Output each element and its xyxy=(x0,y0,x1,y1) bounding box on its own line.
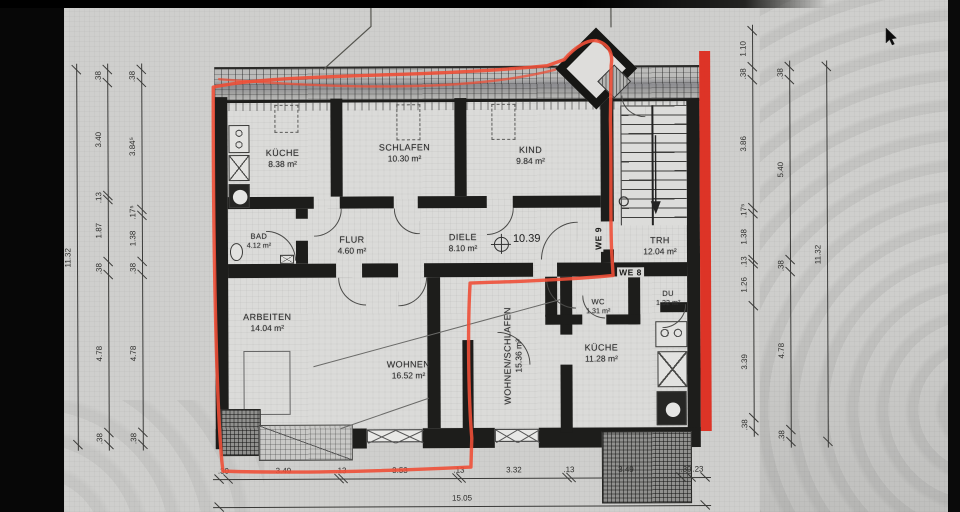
window xyxy=(367,429,423,442)
photo-top-edge xyxy=(0,0,828,8)
wall-bad xyxy=(296,241,308,264)
dimension-value: 3.84⁵ xyxy=(128,137,137,156)
level-marker-icon xyxy=(494,237,509,252)
level-marker-value: 10.39 xyxy=(513,233,541,245)
wall-ws-kueche xyxy=(560,365,572,433)
sink-icon xyxy=(229,184,250,208)
dimension-chain-right-outer xyxy=(826,60,829,447)
room-label-wc: WC1.31 m² xyxy=(586,297,610,316)
dimension-value: 11.32 xyxy=(813,244,822,263)
wall-partition xyxy=(462,340,473,428)
dimension-value: .13 xyxy=(94,192,103,203)
room-area: 4.60 m² xyxy=(338,246,367,257)
unit-label-we8: WE 8 xyxy=(617,267,644,277)
room-label-schlafen: SCHLAFEN10.30 m² xyxy=(379,142,430,164)
counter-icon xyxy=(657,351,687,387)
wall-schlafen-kind xyxy=(454,98,466,196)
room-label-diele: DIELE8.10 m² xyxy=(448,232,477,254)
wall-kind-trh xyxy=(600,97,614,221)
room-name: KÜCHE xyxy=(585,342,619,353)
dimension-value: .38 xyxy=(129,262,138,273)
room-label-trh: TRH12.04 m² xyxy=(643,235,677,257)
dimension-value: .23 xyxy=(692,465,703,474)
dormer-outline xyxy=(491,104,515,140)
dimension-value: 3.49 xyxy=(276,466,292,475)
dimension-chain-right-middle xyxy=(789,61,792,448)
room-name: WOHNEN xyxy=(387,359,430,370)
dimension-chain-left-inner xyxy=(141,63,144,450)
leader-line xyxy=(323,4,371,69)
room-area: 10.30 m² xyxy=(379,154,430,165)
room-name: KÜCHE xyxy=(266,148,300,159)
dormer-outline xyxy=(274,105,298,133)
wall-corridor xyxy=(418,196,487,208)
dimension-value: 11.32 xyxy=(63,248,72,267)
room-label-kueche_og: KÜCHE8.38 m² xyxy=(266,148,300,170)
dimension-value: .17⁵ xyxy=(739,204,748,218)
dimension-value: .38 xyxy=(740,419,749,430)
balcony-hatch xyxy=(221,409,261,456)
dimension-value: .38 xyxy=(777,430,786,441)
sink-icon xyxy=(657,391,687,425)
room-area: 1.32 m² xyxy=(656,298,680,307)
dimension-value: .38 xyxy=(129,433,138,444)
room-name: DIELE xyxy=(448,232,477,243)
toilet-icon xyxy=(230,243,243,261)
floorplan-drawing: WE 9 WE 8 10.39 KÜCHE8.38 m²SCHLAFEN10.3… xyxy=(0,0,960,512)
room-area: 1.31 m² xyxy=(586,307,610,316)
dimension-value: 1.26 xyxy=(740,277,749,293)
dimension-value: .38 xyxy=(128,70,137,81)
letterbox-left xyxy=(0,0,64,512)
wall-bad xyxy=(296,209,308,219)
dimension-chain-left-middle xyxy=(107,64,110,451)
dimension-value: .38 xyxy=(95,433,104,444)
room-label-kind: KIND9.84 m² xyxy=(516,145,545,167)
room-label-flur: FLUR4.60 m² xyxy=(337,235,366,257)
unit-label-we9: WE 9 xyxy=(593,225,603,252)
counter-icon xyxy=(229,155,250,181)
dimension-value: .38 xyxy=(777,260,786,271)
dimension-value: 3.40 xyxy=(94,131,103,147)
wall-middle xyxy=(424,263,533,277)
dimension-chain-right-inner xyxy=(752,25,755,437)
room-label-bad: BAD4.12 m² xyxy=(247,232,271,251)
dimension-value: .30 xyxy=(218,467,229,476)
wall-arbeiten-wohnen xyxy=(427,277,441,428)
dimension-chain-bottom-total xyxy=(213,505,711,508)
room-area: 4.12 m² xyxy=(247,241,271,250)
room-name: TRH xyxy=(643,235,677,246)
dimension-value: .30 xyxy=(680,465,691,474)
room-name: WOHNEN/SCHLAFEN xyxy=(502,307,514,405)
dimension-value: 5.40 xyxy=(776,162,785,178)
dimension-value: 4.78 xyxy=(129,346,138,362)
room-name: FLUR xyxy=(337,235,366,246)
dimension-value: 1.87 xyxy=(94,223,103,239)
room-name: ARBEITEN xyxy=(243,312,291,323)
wall-left xyxy=(214,97,229,449)
dimension-value: 1.10 xyxy=(739,41,748,57)
dimension-value: .13 xyxy=(335,466,346,475)
dimension-value: .38 xyxy=(94,71,103,82)
screenshot-stage: WE 9 WE 8 10.39 KÜCHE8.38 m²SCHLAFEN10.3… xyxy=(0,0,960,512)
red-wall-stripe xyxy=(699,51,712,431)
room-name: SCHLAFEN xyxy=(379,142,430,153)
dimension-value: 3.39 xyxy=(740,354,749,370)
wall-middle xyxy=(228,264,336,278)
desk-outline xyxy=(243,351,290,415)
wall-corridor xyxy=(513,195,601,207)
letterbox-right xyxy=(948,0,960,512)
balcony-railing xyxy=(259,425,353,461)
wall-kueche-schlafen xyxy=(330,99,342,197)
wall-wc-bottom xyxy=(545,315,582,325)
dimension-value: .38 xyxy=(776,68,785,79)
room-label-arbeiten: ARBEITEN14.04 m² xyxy=(243,312,291,334)
wall-bottom xyxy=(423,428,495,448)
room-label-kueche_eg: KÜCHE11.28 m² xyxy=(585,342,619,364)
dimension-value: 3.49 xyxy=(618,465,634,474)
dimension-value: 3.86 xyxy=(739,136,748,152)
dormer-outline xyxy=(396,104,420,140)
dimension-value: .13 xyxy=(740,256,749,267)
dimension-value: .38 xyxy=(739,68,748,79)
dimension-value: 1.38 xyxy=(128,231,137,247)
window xyxy=(495,429,539,442)
stove-icon xyxy=(228,125,249,153)
dimension-value: 1.38 xyxy=(739,229,748,245)
room-name: KIND xyxy=(516,145,545,156)
dimension-value: .13 xyxy=(563,465,574,474)
dimension-value: 3.32 xyxy=(506,465,522,474)
room-label-wohnen: WOHNEN16.52 m² xyxy=(387,359,431,381)
dimension-value: 4.78 xyxy=(777,343,786,359)
room-area: 12.04 m² xyxy=(643,246,677,257)
wall-corridor xyxy=(340,196,394,208)
dimension-chain-left-outer xyxy=(76,64,79,451)
room-area: 9.84 m² xyxy=(516,156,545,167)
room-area: 8.38 m² xyxy=(266,159,300,170)
room-area: 14.04 m² xyxy=(243,323,291,334)
room-label-du: DU1.32 m² xyxy=(656,289,680,308)
room-area: 11.28 m² xyxy=(585,354,619,365)
dimension-value: 4.78 xyxy=(95,346,104,362)
room-area: 15.36 m² xyxy=(514,307,525,405)
dimension-value: .13 xyxy=(453,466,464,475)
dimension-value: 15.05 xyxy=(452,494,472,503)
balcony-hatch xyxy=(602,431,692,503)
room-area: 8.10 m² xyxy=(449,243,478,254)
room-area: 16.52 m² xyxy=(387,371,430,382)
dimension-value: .17⁵ xyxy=(128,205,137,219)
dimension-value: .38 xyxy=(95,263,104,274)
room-label-wohnen_schlafen: WOHNEN/SCHLAFEN15.36 m² xyxy=(502,307,524,405)
wall-wc-bottom xyxy=(606,314,640,324)
dimension-value: 3.53 xyxy=(392,466,408,475)
wall-middle xyxy=(362,263,398,277)
